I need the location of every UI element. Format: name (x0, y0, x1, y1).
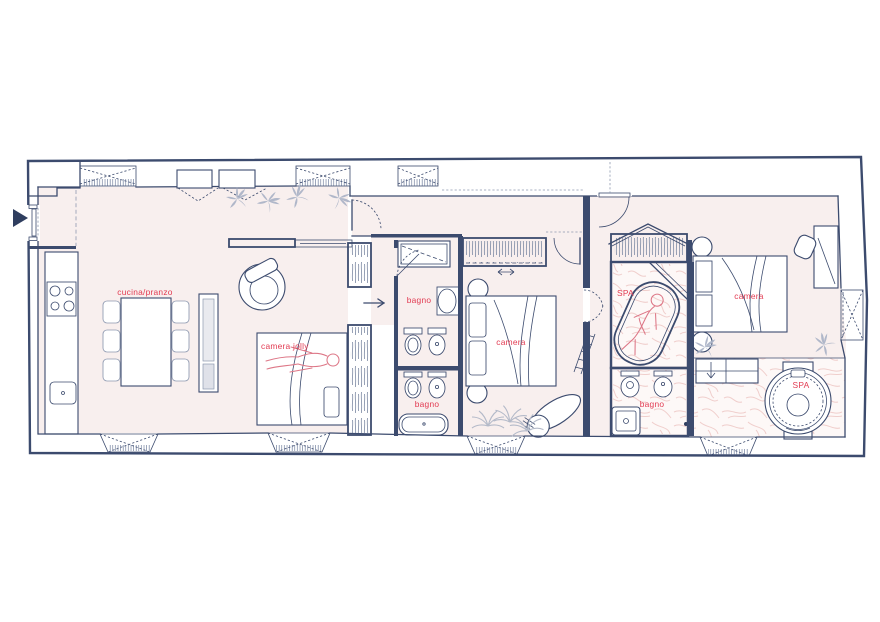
tall-cabinet (199, 294, 218, 392)
bidet-icon (428, 328, 446, 355)
entry-door (27, 205, 40, 241)
floor-plan-drawing: cucina/pranzo camera jolly bagno camera … (0, 0, 880, 622)
window-bottom-3 (467, 436, 525, 454)
shower-tray-icon (612, 407, 640, 435)
window-top-3 (398, 166, 438, 186)
shower-icon (398, 241, 450, 267)
room-label-kitchen-dining: cucina/pranzo (117, 287, 172, 297)
room-label-bedroom-middle: camera (496, 337, 526, 347)
hall-closets (348, 243, 371, 435)
toilet-icon (404, 372, 422, 398)
dining-table (103, 298, 189, 386)
window-top-1 (80, 166, 136, 186)
bidet-icon (654, 371, 672, 397)
room-label-bathroom-bottom: bagno (415, 399, 440, 409)
bidet-icon (428, 372, 446, 398)
toilet-icon (404, 328, 422, 355)
room-label-spa-bath: SPA (617, 288, 634, 298)
spa-steps-bench (696, 359, 758, 383)
stove-icon (47, 282, 76, 316)
bedside-table (692, 237, 712, 257)
window-bottom-4 (700, 437, 757, 456)
kitchen-sink-icon (50, 382, 76, 404)
window-bottom-2 (268, 433, 330, 452)
window-top-2 (296, 166, 350, 186)
entrance-arrow (13, 209, 28, 227)
kitchen-counter (45, 252, 78, 434)
bathtub-icon (399, 414, 448, 435)
floor-plan-page: cucina/pranzo camera jolly bagno camera … (0, 0, 880, 622)
toilet-icon (621, 371, 639, 397)
room-label-jolly-bedroom: camera jolly (261, 341, 309, 351)
washbasin-icon (437, 287, 459, 315)
room-label-bathroom-top: bagno (407, 295, 432, 305)
window-bottom-1 (100, 434, 158, 452)
room-label-bathroom-right: bagno (640, 399, 665, 409)
window-right-wall (841, 290, 863, 340)
room-label-spa-jacuzzi: SPA (793, 380, 810, 390)
room-label-bedroom-right: camera (734, 291, 764, 301)
